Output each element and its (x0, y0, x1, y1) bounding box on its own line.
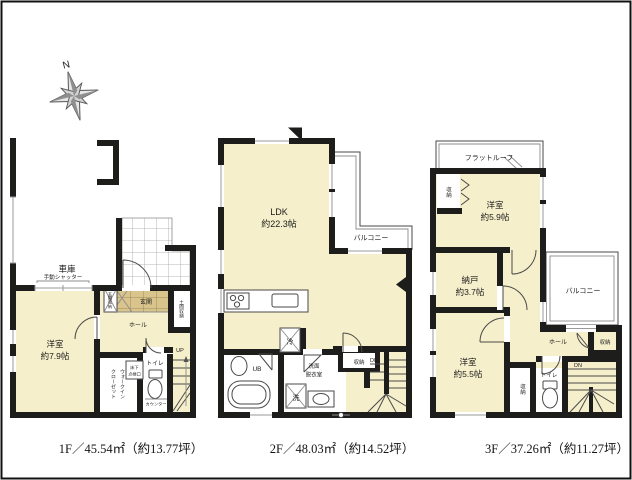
floor-plan-3f: フラットルーフ 収納 洋室 約5.9帖 納戸 約3.7帖 バルコニー ホール 収… (430, 141, 622, 418)
storage-top-label: 収納 (445, 186, 452, 199)
compass-north-label: N (62, 59, 72, 71)
caption-2f: 2F／48.03㎡（約14.52坪） (270, 441, 414, 456)
ldk-size: 約22.3帖 (261, 218, 297, 229)
toilet-tank-1f (149, 370, 162, 378)
laundry-label: 洗 (293, 393, 300, 402)
hall-label-3f: ホール (549, 339, 567, 346)
washroom-label-1: 洗面 (308, 362, 320, 370)
room59-size: 約5.9帖 (481, 212, 510, 222)
counter-label: カウンター (146, 401, 167, 408)
ldk-name: LDK (270, 207, 288, 217)
room-7-9-name: 洋室 (46, 339, 64, 349)
entrance-storage-label: 玄関収納 (107, 290, 113, 310)
floor-plan-drawing: N (0, 0, 632, 480)
room59-name: 洋室 (486, 200, 504, 210)
caption-3f: 3F／37.26㎡（約11.27坪） (485, 441, 629, 456)
storage-bottom-label: 収納 (519, 383, 526, 396)
floor-plan-2f: LDK 約22.3帖 バルコニー 冷 UB 洗面 脱衣室 洗 収納 UP DN (218, 128, 412, 419)
washroom-label-2: 脱衣室 (306, 371, 323, 379)
balcony-label-2f: バルコニー (354, 234, 389, 242)
dn-label-3f: DN (574, 363, 582, 369)
room55-name: 洋室 (459, 357, 477, 367)
garage-label: 車庫 (58, 264, 76, 274)
fridge-label: 冷 (287, 337, 294, 346)
up-label-1f: UP (176, 348, 184, 354)
vent-symbol (339, 413, 344, 418)
porch-tiles (122, 218, 190, 288)
room-7-9-size: 約7.9帖 (41, 351, 70, 361)
up-label-2f: UP (393, 347, 401, 353)
compass-rose: N (41, 54, 105, 126)
storage-right-label: 収納 (599, 338, 611, 346)
storeroom-size: 約3.7帖 (456, 287, 485, 297)
bath-basin (231, 357, 247, 376)
wic-label-2: クローゼット (110, 369, 116, 399)
toilet-label-1f: トイレ (146, 361, 164, 367)
storeroom-name: 納戸 (461, 275, 478, 285)
shutter-label: 手動シャッター (44, 273, 83, 281)
storage-2f-label: 収納 (353, 358, 365, 366)
flat-roof-label: フラットルーフ (465, 154, 514, 162)
toilet-bowl-1f (148, 380, 162, 399)
toilet-label-3f: トイレ (541, 373, 558, 379)
genkan-label: 玄関 (140, 298, 152, 306)
floor-plan-page: N (0, 0, 632, 480)
floor-plan-1f: 車庫 手動シャッター 洋室 約7.9帖 玄関 玄関収納 土間収納 ホール ウォー… (10, 138, 196, 418)
dn-label-2f: DN (370, 358, 378, 364)
shutter-bracket (37, 281, 89, 283)
balcony-label-3f: バルコニー (566, 287, 601, 295)
1f-room-fills (16, 218, 190, 412)
wic-label-1: ウォークイン (119, 368, 125, 399)
floor-captions: 1F／45.54㎡（約13.77坪） 2F／48.03㎡（約14.52坪） 3F… (59, 441, 629, 456)
toilet-bowl-3f (543, 388, 558, 408)
hall-label-1f: ホール (129, 322, 147, 329)
room55-size: 約5.5帖 (454, 369, 483, 379)
ub-label: UB (252, 366, 261, 373)
caption-1f: 1F／45.54㎡（約13.77坪） (59, 441, 203, 456)
underfloor-hatch-label-2: 点検口 (128, 371, 141, 378)
underfloor-hatch-label-1: 床下 (130, 364, 138, 371)
dirt-storage-label: 土間収納 (179, 299, 185, 320)
